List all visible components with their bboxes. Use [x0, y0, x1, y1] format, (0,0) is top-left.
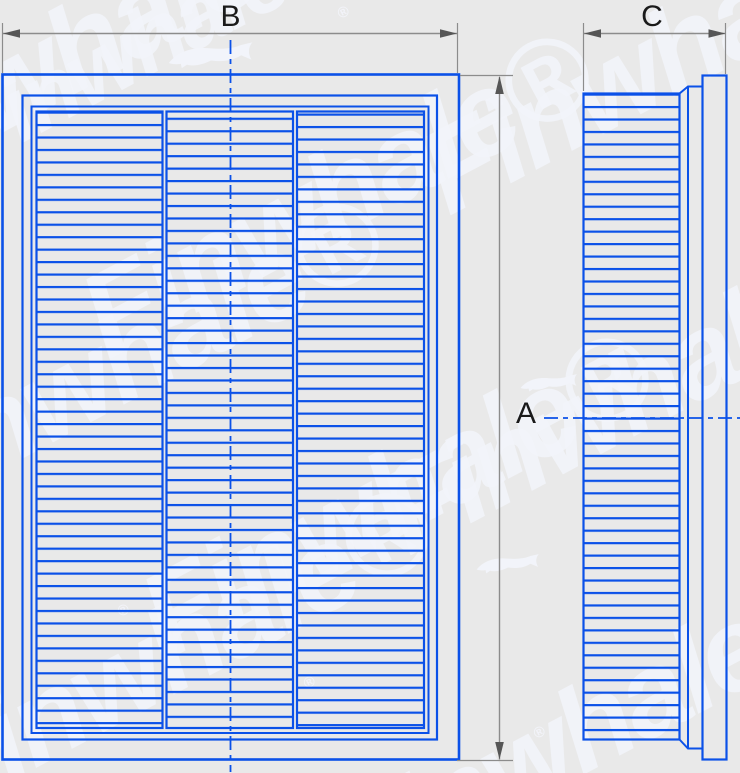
dim-a-label: A — [516, 397, 536, 430]
dim-c-arrow-left — [584, 29, 601, 38]
dimension-A: A — [457, 76, 536, 761]
dim-b-arrow-right — [440, 29, 457, 38]
filter-technical-drawing: Finwhale® Finwhale® Finwhale® Finwhale® … — [0, 0, 740, 773]
front-view — [3, 40, 460, 772]
dim-a-arrow-top — [495, 76, 504, 94]
dim-c-arrow-right — [709, 29, 726, 38]
side-frame-bottom-edge — [680, 740, 703, 749]
side-pleat-block — [584, 94, 680, 740]
dim-b-label: B — [220, 0, 240, 33]
front-pleat-column-1 — [37, 112, 163, 729]
dim-a-arrow-bottom — [495, 742, 504, 760]
dim-b-arrow-left — [3, 29, 20, 38]
front-pleat-column-3 — [297, 112, 424, 729]
dimension-C: C — [584, 0, 726, 91]
drawing-svg: B C A — [0, 0, 740, 773]
dim-c-label: C — [641, 0, 663, 33]
side-view — [544, 76, 740, 760]
side-frame-top-edge — [680, 87, 703, 94]
